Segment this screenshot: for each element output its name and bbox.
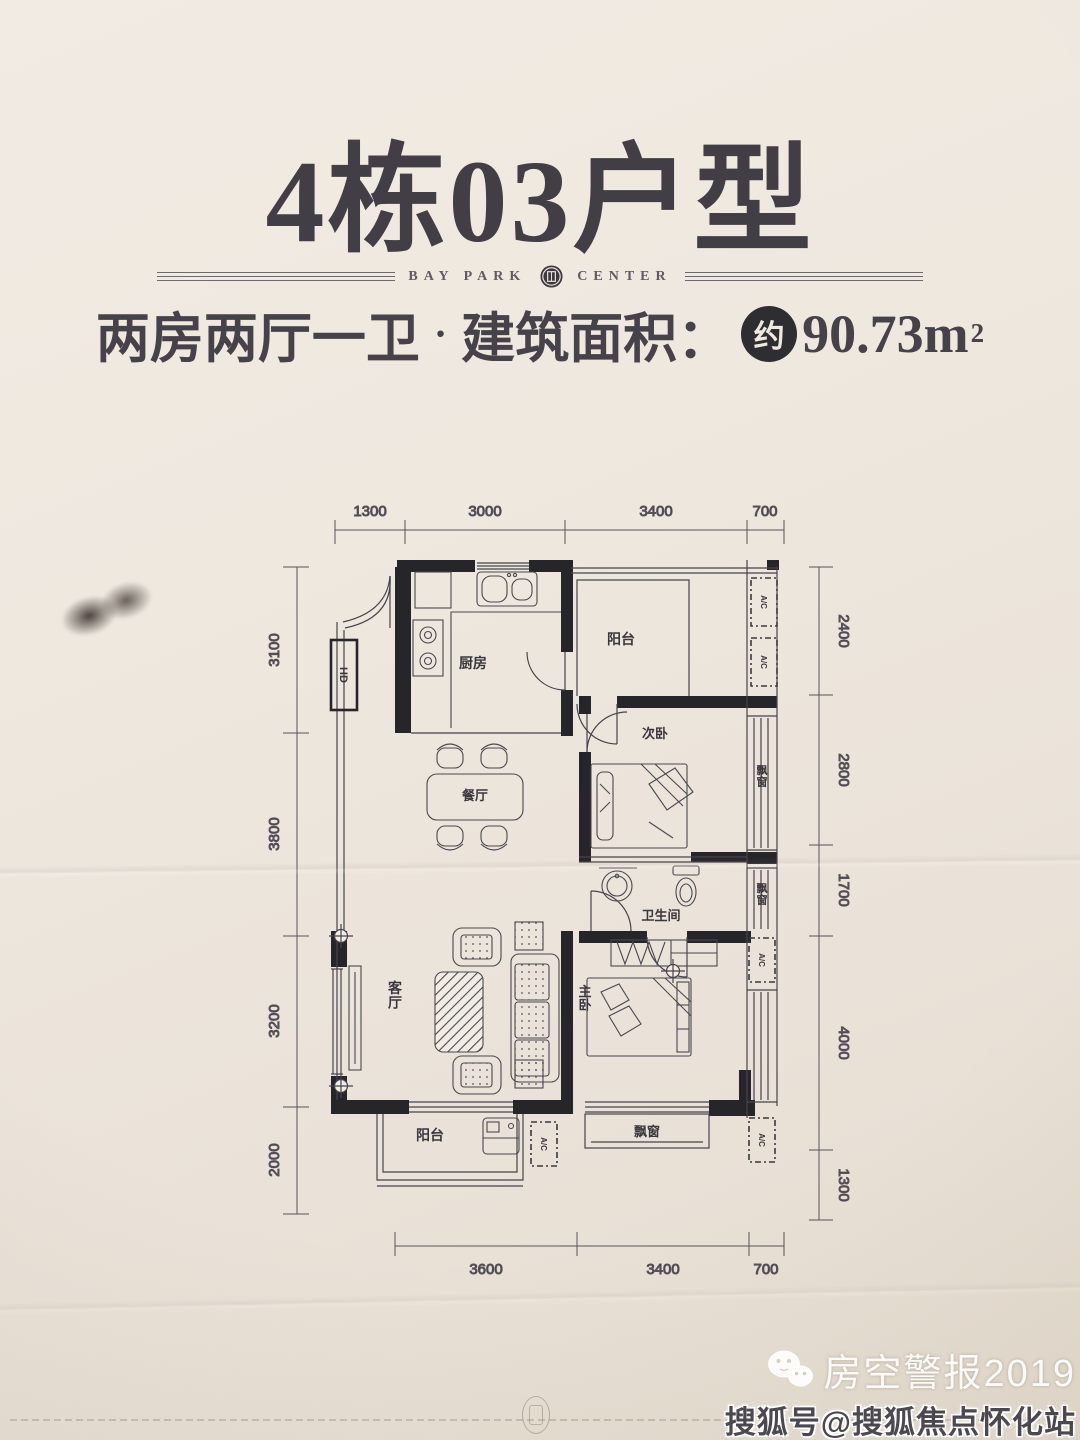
- coffee-table: [435, 972, 483, 1052]
- brand-seal-icon: [539, 264, 564, 289]
- armchair-top: [453, 928, 501, 966]
- armchair-bottom: [453, 1056, 501, 1094]
- room-label-kitchen: 厨房: [459, 655, 487, 671]
- area-value: 90.73m: [802, 303, 968, 365]
- ac-unit-box: A/C: [749, 1118, 775, 1162]
- dim-chain-bottom: 3600 3400 700: [395, 1232, 784, 1278]
- flue-label: HD: [337, 667, 349, 683]
- svg-text:A/C: A/C: [757, 953, 766, 967]
- room-label-bathroom: 卫生间: [641, 908, 680, 923]
- master-bay-slider: [585, 1102, 709, 1112]
- subtitle-separator: ·: [434, 310, 447, 357]
- bay-window-label-lower: 飘窗: [757, 882, 768, 907]
- dim-right-2: 2800: [835, 753, 852, 786]
- dim-right-4: 4000: [835, 1026, 852, 1059]
- master-bed: [587, 978, 691, 1056]
- dim-right-3: 1700: [835, 873, 852, 906]
- room-label-bedroom-second: 次卧: [642, 726, 668, 741]
- wash-basin: [599, 868, 637, 901]
- dim-bottom-2: 3400: [646, 1261, 679, 1278]
- bathroom-door-arc: [591, 891, 631, 931]
- kitchen-fittings: [413, 572, 561, 728]
- toilet: [673, 866, 699, 906]
- axis-marker: [661, 959, 685, 983]
- dim-right-5: 1300: [835, 1168, 852, 1201]
- dim-chain-right: 2400 2800 1700 4000 1300: [809, 567, 852, 1220]
- dim-left-2: 3800: [266, 817, 283, 850]
- room-label-dining: 餐厅: [461, 788, 488, 803]
- divider-line-right: [685, 272, 923, 281]
- room-label-living: 客厅: [387, 980, 403, 1011]
- brand-right: CENTER: [577, 269, 671, 285]
- side-table-top: [515, 922, 543, 950]
- watermark-publisher-row: 房空警报2019: [725, 1342, 1076, 1397]
- living-room-furniture: [349, 922, 559, 1094]
- approx-badge: 约: [741, 306, 797, 362]
- area-label: 建筑面积：: [461, 294, 731, 373]
- wardrobe: [611, 940, 717, 966]
- washing-machine: [483, 1118, 519, 1154]
- dim-top-1: 1300: [353, 503, 386, 520]
- watermark-account: 搜狐号@搜狐焦点怀化站: [725, 1397, 1076, 1442]
- wechat-icon: [767, 1349, 815, 1391]
- side-table-bottom: [515, 1060, 543, 1088]
- watermark: 房空警报2019 搜狐号@搜狐焦点怀化站: [725, 1342, 1076, 1442]
- footer-seal-icon: [522, 1396, 550, 1434]
- ac-unit-box: A/C: [531, 1122, 557, 1166]
- dim-top-4: 700: [752, 503, 777, 520]
- tv-cabinet: [349, 966, 361, 1070]
- svg-text:A/C: A/C: [759, 595, 768, 609]
- dim-chain-left: 3100 3800 3200 2000: [266, 567, 309, 1214]
- kitchen-sink: [477, 572, 537, 606]
- brand-left: BAY PARK: [408, 269, 526, 285]
- bathroom-fittings: [599, 866, 699, 906]
- bay-window-label-bottom: 飘窗: [634, 1124, 660, 1139]
- dim-left-3: 3200: [266, 1004, 283, 1037]
- dim-chain-top: 1300 3000 3400 700: [335, 503, 784, 544]
- ac-unit-box: A/C: [751, 638, 777, 686]
- paper-crease: [0, 1280, 1080, 1315]
- dim-bottom-1: 3600: [469, 1261, 502, 1278]
- svg-text:A/C: A/C: [759, 655, 768, 669]
- svg-text:A/C: A/C: [539, 1137, 548, 1151]
- ac-unit-box: A/C: [749, 938, 775, 982]
- kitchen-door-arc: [527, 652, 565, 690]
- svg-text:A/C: A/C: [757, 1133, 766, 1147]
- unit-title: 4栋03户型: [0, 104, 1080, 275]
- bay-window-glazing-master: [747, 990, 777, 1102]
- room-label-balcony-bottom: 阳台: [416, 1127, 444, 1143]
- photo-smudge: [52, 569, 163, 650]
- room-label-master: 主卧: [578, 984, 591, 1013]
- watermark-publisher: 房空警报2019: [823, 1342, 1076, 1397]
- bedroom-second-door-arc: [587, 712, 627, 752]
- floorplan-flyer-photo: 4栋03户型 BAY PARK CENTER 两房两厅一卫 · 建筑面积： 约 …: [0, 0, 1080, 1440]
- dim-top-2: 3000: [468, 503, 501, 520]
- stove: [413, 620, 443, 676]
- dim-right-1: 2400: [835, 614, 852, 647]
- structural-walls: [331, 560, 779, 1116]
- balcony-bottom-fittings: [483, 1118, 519, 1154]
- dim-top-3: 3400: [639, 503, 672, 520]
- brand-divider: BAY PARK CENTER: [0, 264, 1080, 289]
- bay-window-label-upper: 飘窗: [757, 764, 768, 789]
- ac-unit-box: A/C: [751, 578, 777, 626]
- living-balcony-slider: [409, 1102, 513, 1112]
- axis-markers: [329, 924, 685, 1098]
- dim-left-1: 3100: [266, 633, 283, 666]
- room-label-balcony-top: 阳台: [607, 631, 635, 647]
- divider-line-left: [157, 272, 395, 281]
- area-exponent: 2: [971, 318, 985, 349]
- dim-left-4: 2000: [266, 1143, 283, 1176]
- bedroom-second-furniture: [591, 764, 693, 848]
- unit-subtitle: 两房两厅一卫 · 建筑面积： 约 90.73m 2: [0, 294, 1080, 373]
- fridge: [415, 572, 451, 608]
- layout-spec: 两房两厅一卫: [96, 294, 420, 373]
- floorplan-drawing: 1300 3000 3400 700 3100 3800 3200 2000 2…: [225, 472, 865, 1282]
- dim-bottom-3: 700: [753, 1261, 778, 1278]
